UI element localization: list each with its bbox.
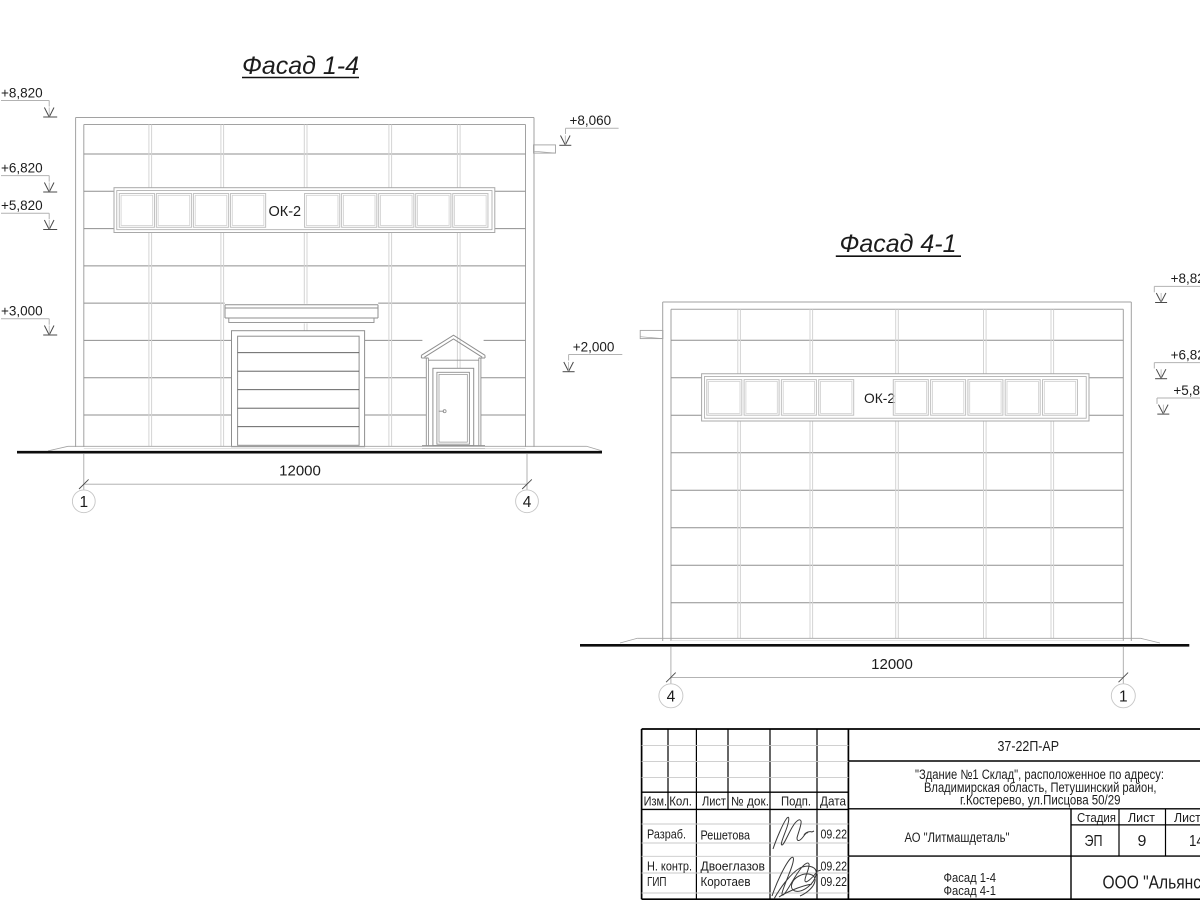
svg-text:№ док.: № док.	[731, 795, 769, 809]
svg-text:09.22: 09.22	[821, 874, 848, 889]
svg-text:+8,820: +8,820	[1, 85, 43, 100]
svg-text:+5,820: +5,820	[1, 198, 43, 213]
svg-text:9: 9	[1138, 833, 1147, 850]
svg-text:Решетова: Решетова	[701, 828, 751, 843]
svg-text:Подп.: Подп.	[781, 795, 811, 809]
svg-text:ОК-2: ОК-2	[268, 204, 301, 220]
svg-text:+6,820: +6,820	[1, 160, 43, 175]
svg-text:Листов: Листов	[1174, 810, 1200, 825]
svg-text:09.22: 09.22	[821, 859, 848, 874]
svg-text:Лист: Лист	[702, 795, 726, 809]
svg-text:Фасад 1-4: Фасад 1-4	[242, 52, 359, 80]
svg-text:Лист: Лист	[1128, 810, 1155, 825]
svg-text:АО "Литмашдеталь": АО "Литмашдеталь"	[905, 830, 1010, 845]
svg-text:Изм.: Изм.	[644, 795, 667, 809]
svg-text:ГИП: ГИП	[647, 874, 667, 889]
svg-text:Коротаев: Коротаев	[701, 874, 751, 889]
svg-text:Н. контр.: Н. контр.	[647, 859, 692, 874]
svg-text:+5,820: +5,820	[1173, 383, 1200, 398]
svg-text:4: 4	[523, 494, 532, 511]
svg-text:+8,060: +8,060	[570, 113, 612, 128]
svg-text:1: 1	[1119, 689, 1128, 706]
svg-text:ООО "Альянс": ООО "Альянс"	[1103, 873, 1200, 893]
svg-text:+6,820: +6,820	[1171, 347, 1200, 362]
svg-text:12000: 12000	[279, 463, 321, 480]
svg-text:ЭП: ЭП	[1085, 833, 1103, 850]
svg-text:4: 4	[667, 689, 676, 706]
svg-text:Дата: Дата	[820, 795, 846, 809]
svg-text:Фасад 4-1: Фасад 4-1	[839, 230, 956, 258]
svg-text:+2,000: +2,000	[573, 339, 615, 354]
svg-text:12000: 12000	[871, 656, 913, 673]
svg-text:Разраб.: Разраб.	[647, 827, 686, 842]
svg-text:+8,820: +8,820	[1171, 271, 1200, 286]
svg-text:09.22: 09.22	[821, 827, 848, 842]
svg-text:Двоеглазов: Двоеглазов	[701, 859, 766, 874]
svg-text:Стадия: Стадия	[1077, 810, 1116, 825]
svg-text:14: 14	[1189, 833, 1200, 850]
svg-text:+3,000: +3,000	[1, 304, 43, 319]
svg-text:1: 1	[79, 494, 88, 511]
svg-text:Кол.: Кол.	[669, 795, 692, 809]
svg-text:г.Костерево, ул.Писцова 50/29: г.Костерево, ул.Писцова 50/29	[960, 793, 1121, 808]
svg-text:ОК-2: ОК-2	[864, 391, 895, 406]
svg-text:37-22П-АР: 37-22П-АР	[998, 738, 1060, 755]
svg-text:Фасад 4-1: Фасад 4-1	[944, 883, 997, 898]
